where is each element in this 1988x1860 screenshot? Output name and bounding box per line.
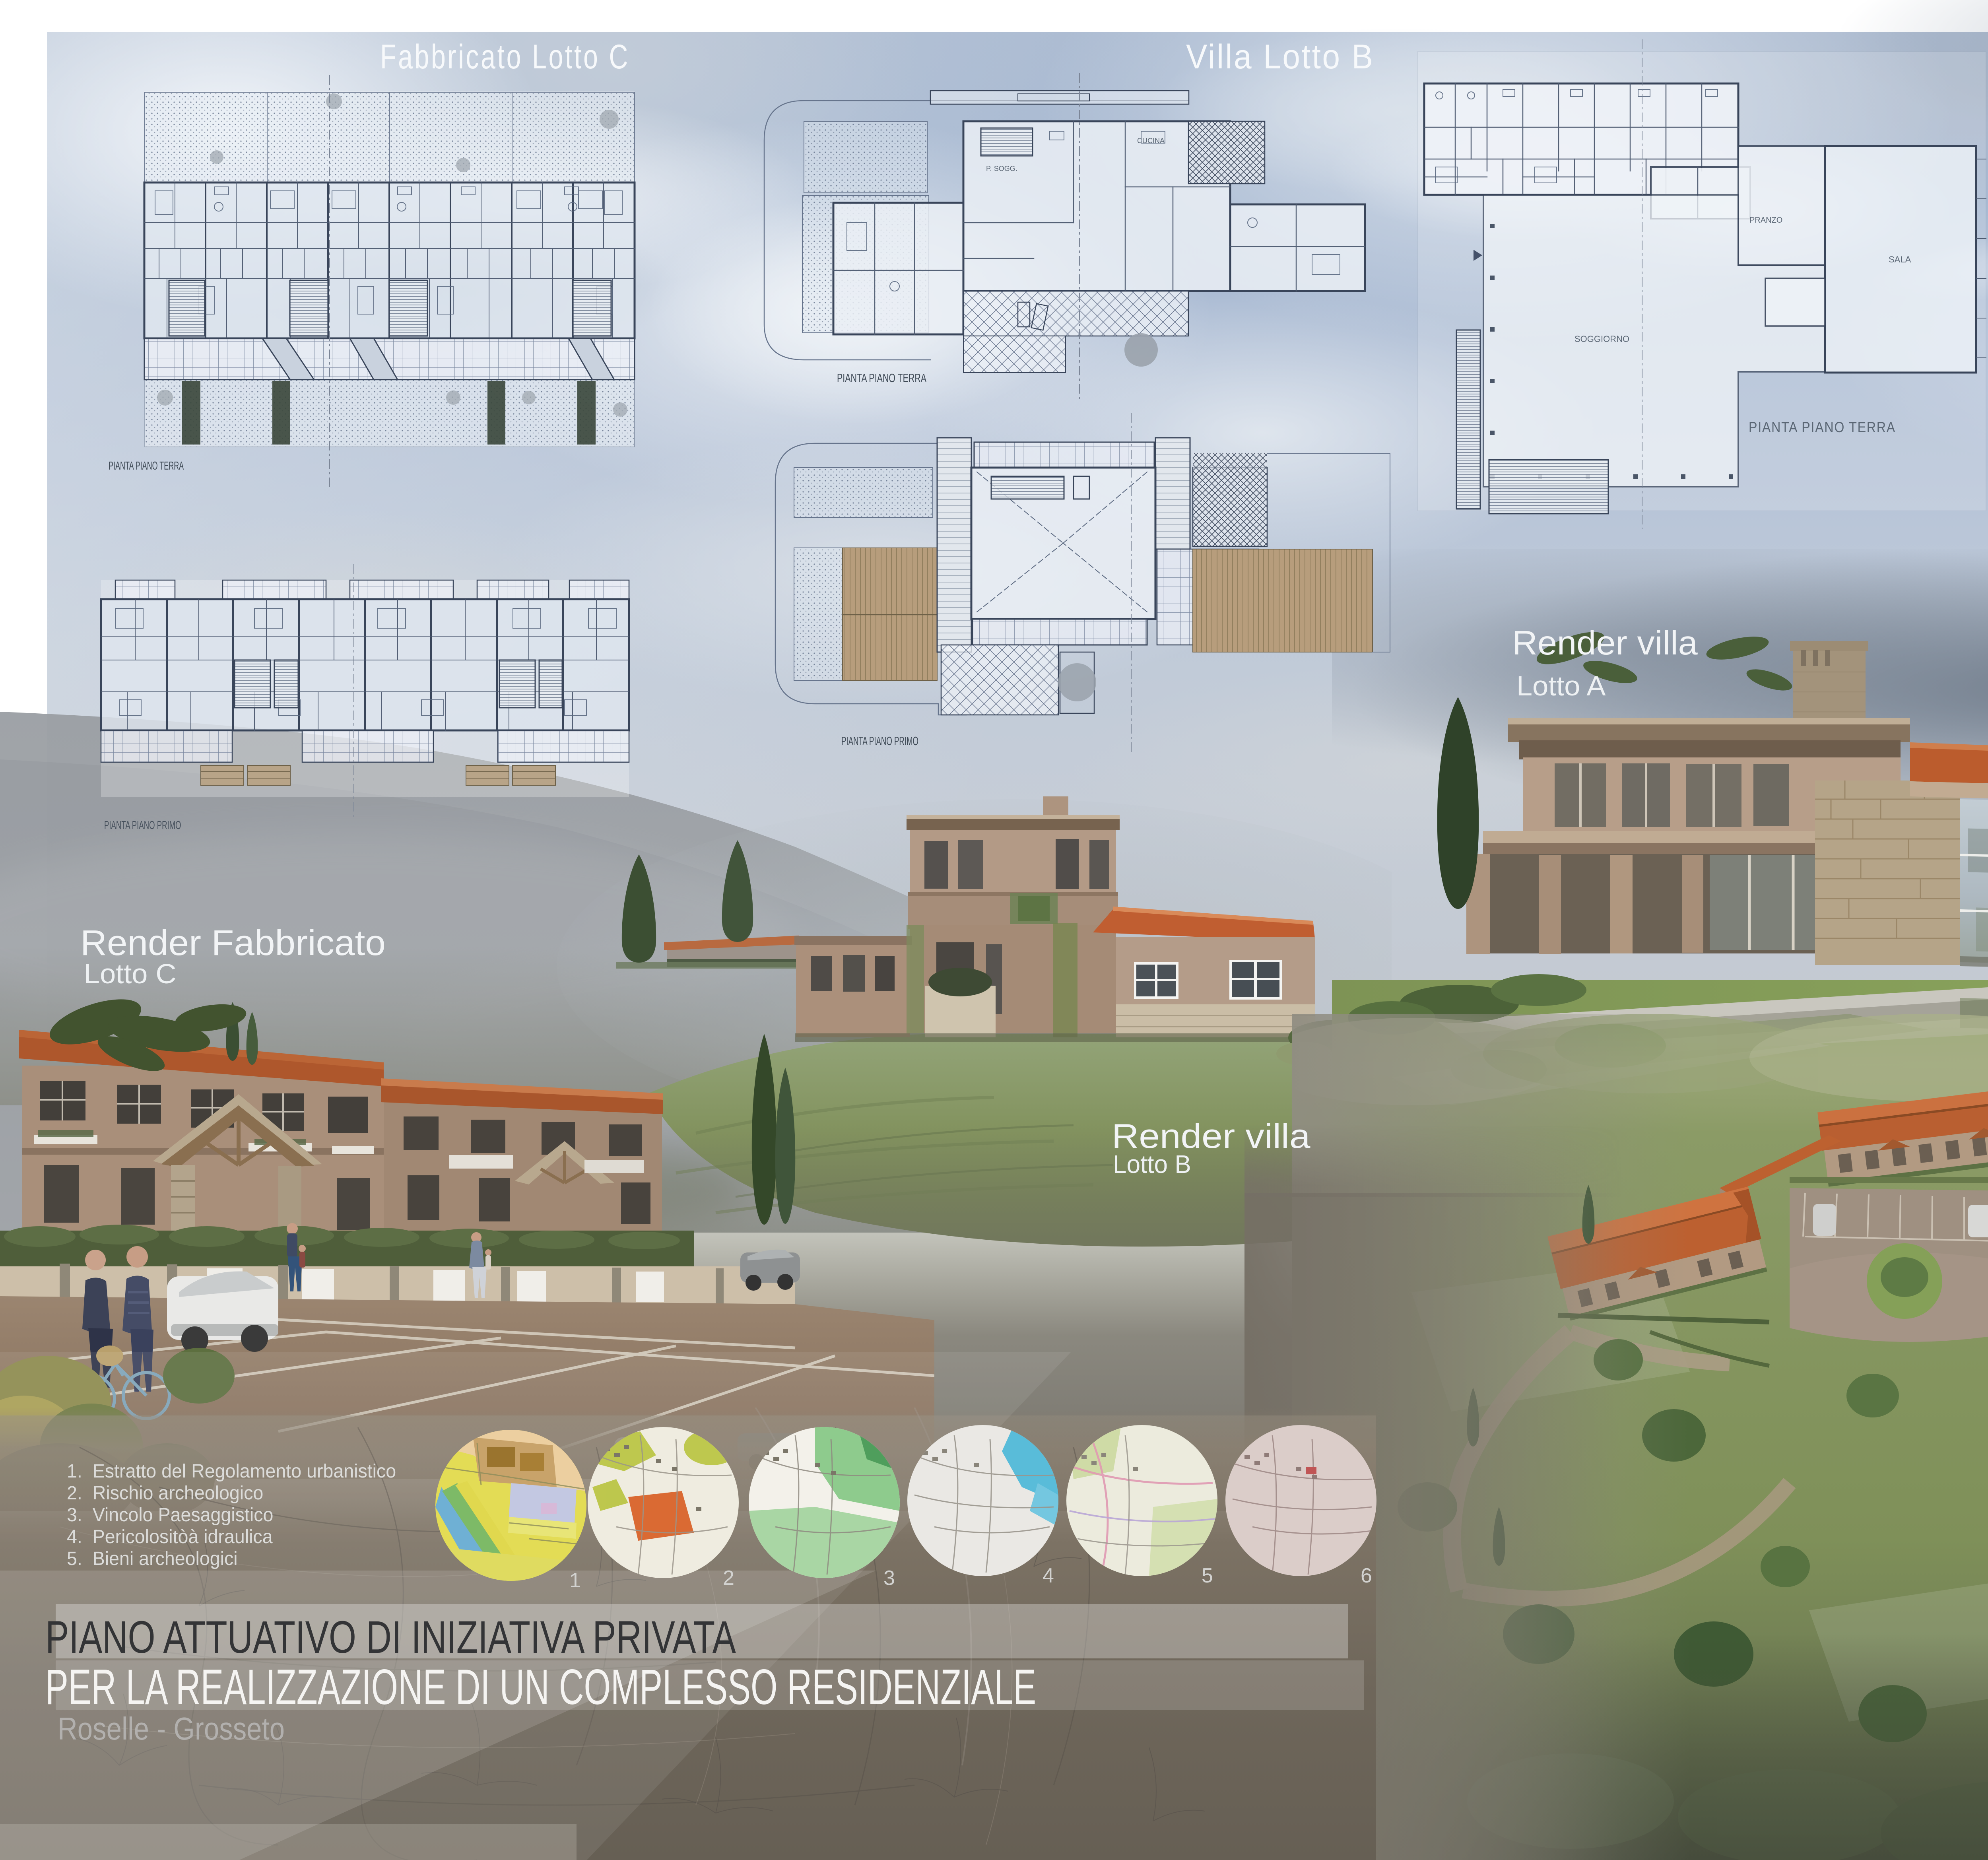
svg-text:PRANZO: PRANZO [1749, 216, 1782, 225]
svg-text:P. SOGG.: P. SOGG. [986, 165, 1017, 173]
svg-text:6: 6 [1361, 1564, 1372, 1587]
svg-text:SOGGIORNO: SOGGIORNO [1574, 334, 1629, 344]
svg-text:4: 4 [1043, 1564, 1054, 1587]
svg-text:2: 2 [723, 1567, 734, 1590]
svg-text:SALA: SALA [1889, 254, 1911, 264]
svg-text:CUCINA: CUCINA [1137, 137, 1165, 145]
svg-text:5: 5 [1202, 1564, 1213, 1587]
svg-text:3: 3 [883, 1567, 895, 1590]
svg-text:1: 1 [569, 1569, 581, 1592]
